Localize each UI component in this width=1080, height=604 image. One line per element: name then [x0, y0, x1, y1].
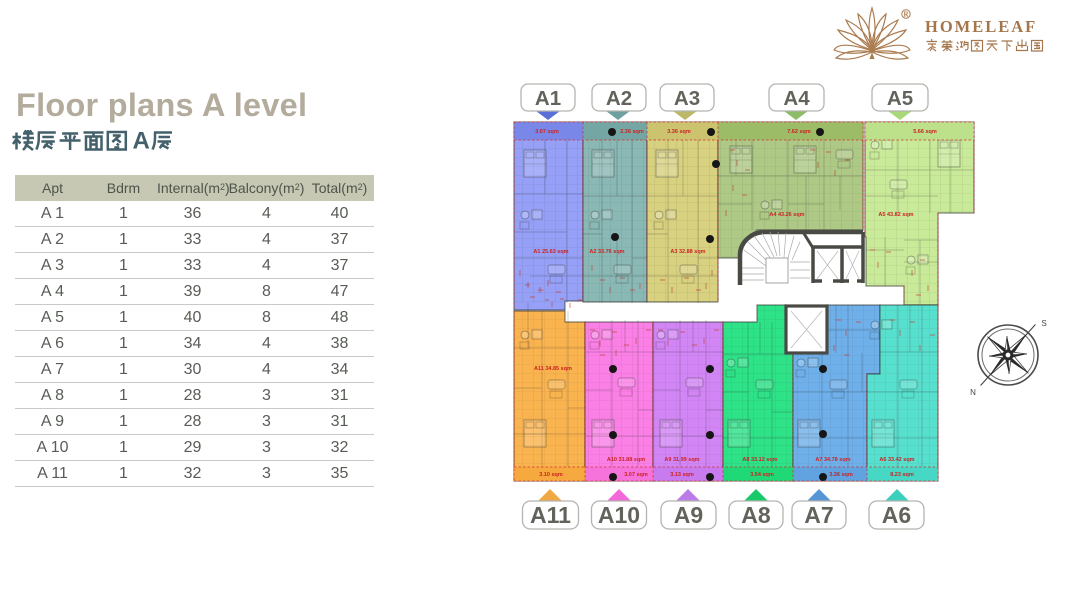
- svg-text:A11: A11: [530, 502, 571, 528]
- svg-text:S: S: [1041, 319, 1046, 328]
- svg-text:A3 32.88 sqm: A3 32.88 sqm: [670, 249, 705, 255]
- svg-text:A1 25.63 sqm: A1 25.63 sqm: [533, 249, 568, 255]
- svg-text:A9 31.99 sqm: A9 31.99 sqm: [664, 457, 699, 463]
- svg-text:A6 33.42 sqm: A6 33.42 sqm: [879, 457, 914, 463]
- svg-text:3.13 sqm: 3.13 sqm: [670, 472, 694, 478]
- svg-text:A2: A2: [606, 87, 632, 110]
- svg-text:7.62 sqm: 7.62 sqm: [787, 129, 811, 135]
- svg-text:HOMELEAF: HOMELEAF: [925, 17, 1037, 36]
- svg-text:A11 34.85 sqm: A11 34.85 sqm: [534, 366, 572, 372]
- svg-text:5.66 sqm: 5.66 sqm: [913, 129, 937, 135]
- svg-text:3.36 sqm: 3.36 sqm: [829, 472, 853, 478]
- svg-text:A9: A9: [674, 502, 703, 528]
- svg-text:3.07 sqm: 3.07 sqm: [535, 129, 559, 135]
- svg-text:3.10 sqm: 3.10 sqm: [539, 472, 563, 478]
- svg-text:A3: A3: [674, 87, 700, 110]
- svg-text:A6: A6: [882, 502, 911, 528]
- svg-text:3.36 sqm: 3.36 sqm: [667, 129, 691, 135]
- svg-text:A8: A8: [741, 502, 771, 528]
- svg-text:3.54 sqm: 3.54 sqm: [750, 472, 774, 478]
- svg-text:8.23 sqm: 8.23 sqm: [890, 472, 914, 478]
- svg-text:A4: A4: [783, 87, 810, 110]
- svg-text:2.36 sqm: 2.36 sqm: [620, 129, 644, 135]
- svg-text:A1: A1: [535, 87, 561, 110]
- svg-text:A7 34.78 sqm: A7 34.78 sqm: [815, 457, 850, 463]
- svg-text:3.07 sqm: 3.07 sqm: [624, 472, 648, 478]
- svg-text:A8 33.12 sqm: A8 33.12 sqm: [742, 457, 777, 463]
- svg-text:N: N: [970, 388, 976, 397]
- svg-text:A4 43.26 sqm: A4 43.26 sqm: [769, 212, 804, 218]
- svg-text:A: A: [133, 128, 150, 155]
- svg-text:A10: A10: [598, 502, 640, 528]
- svg-text:A5: A5: [887, 87, 913, 110]
- svg-text:A2 33.76 sqm: A2 33.76 sqm: [589, 249, 624, 255]
- svg-text:A7: A7: [804, 502, 833, 528]
- svg-text:A10 31.88 sqm: A10 31.88 sqm: [607, 457, 645, 463]
- svg-text:A5 43.82 sqm: A5 43.82 sqm: [878, 212, 913, 218]
